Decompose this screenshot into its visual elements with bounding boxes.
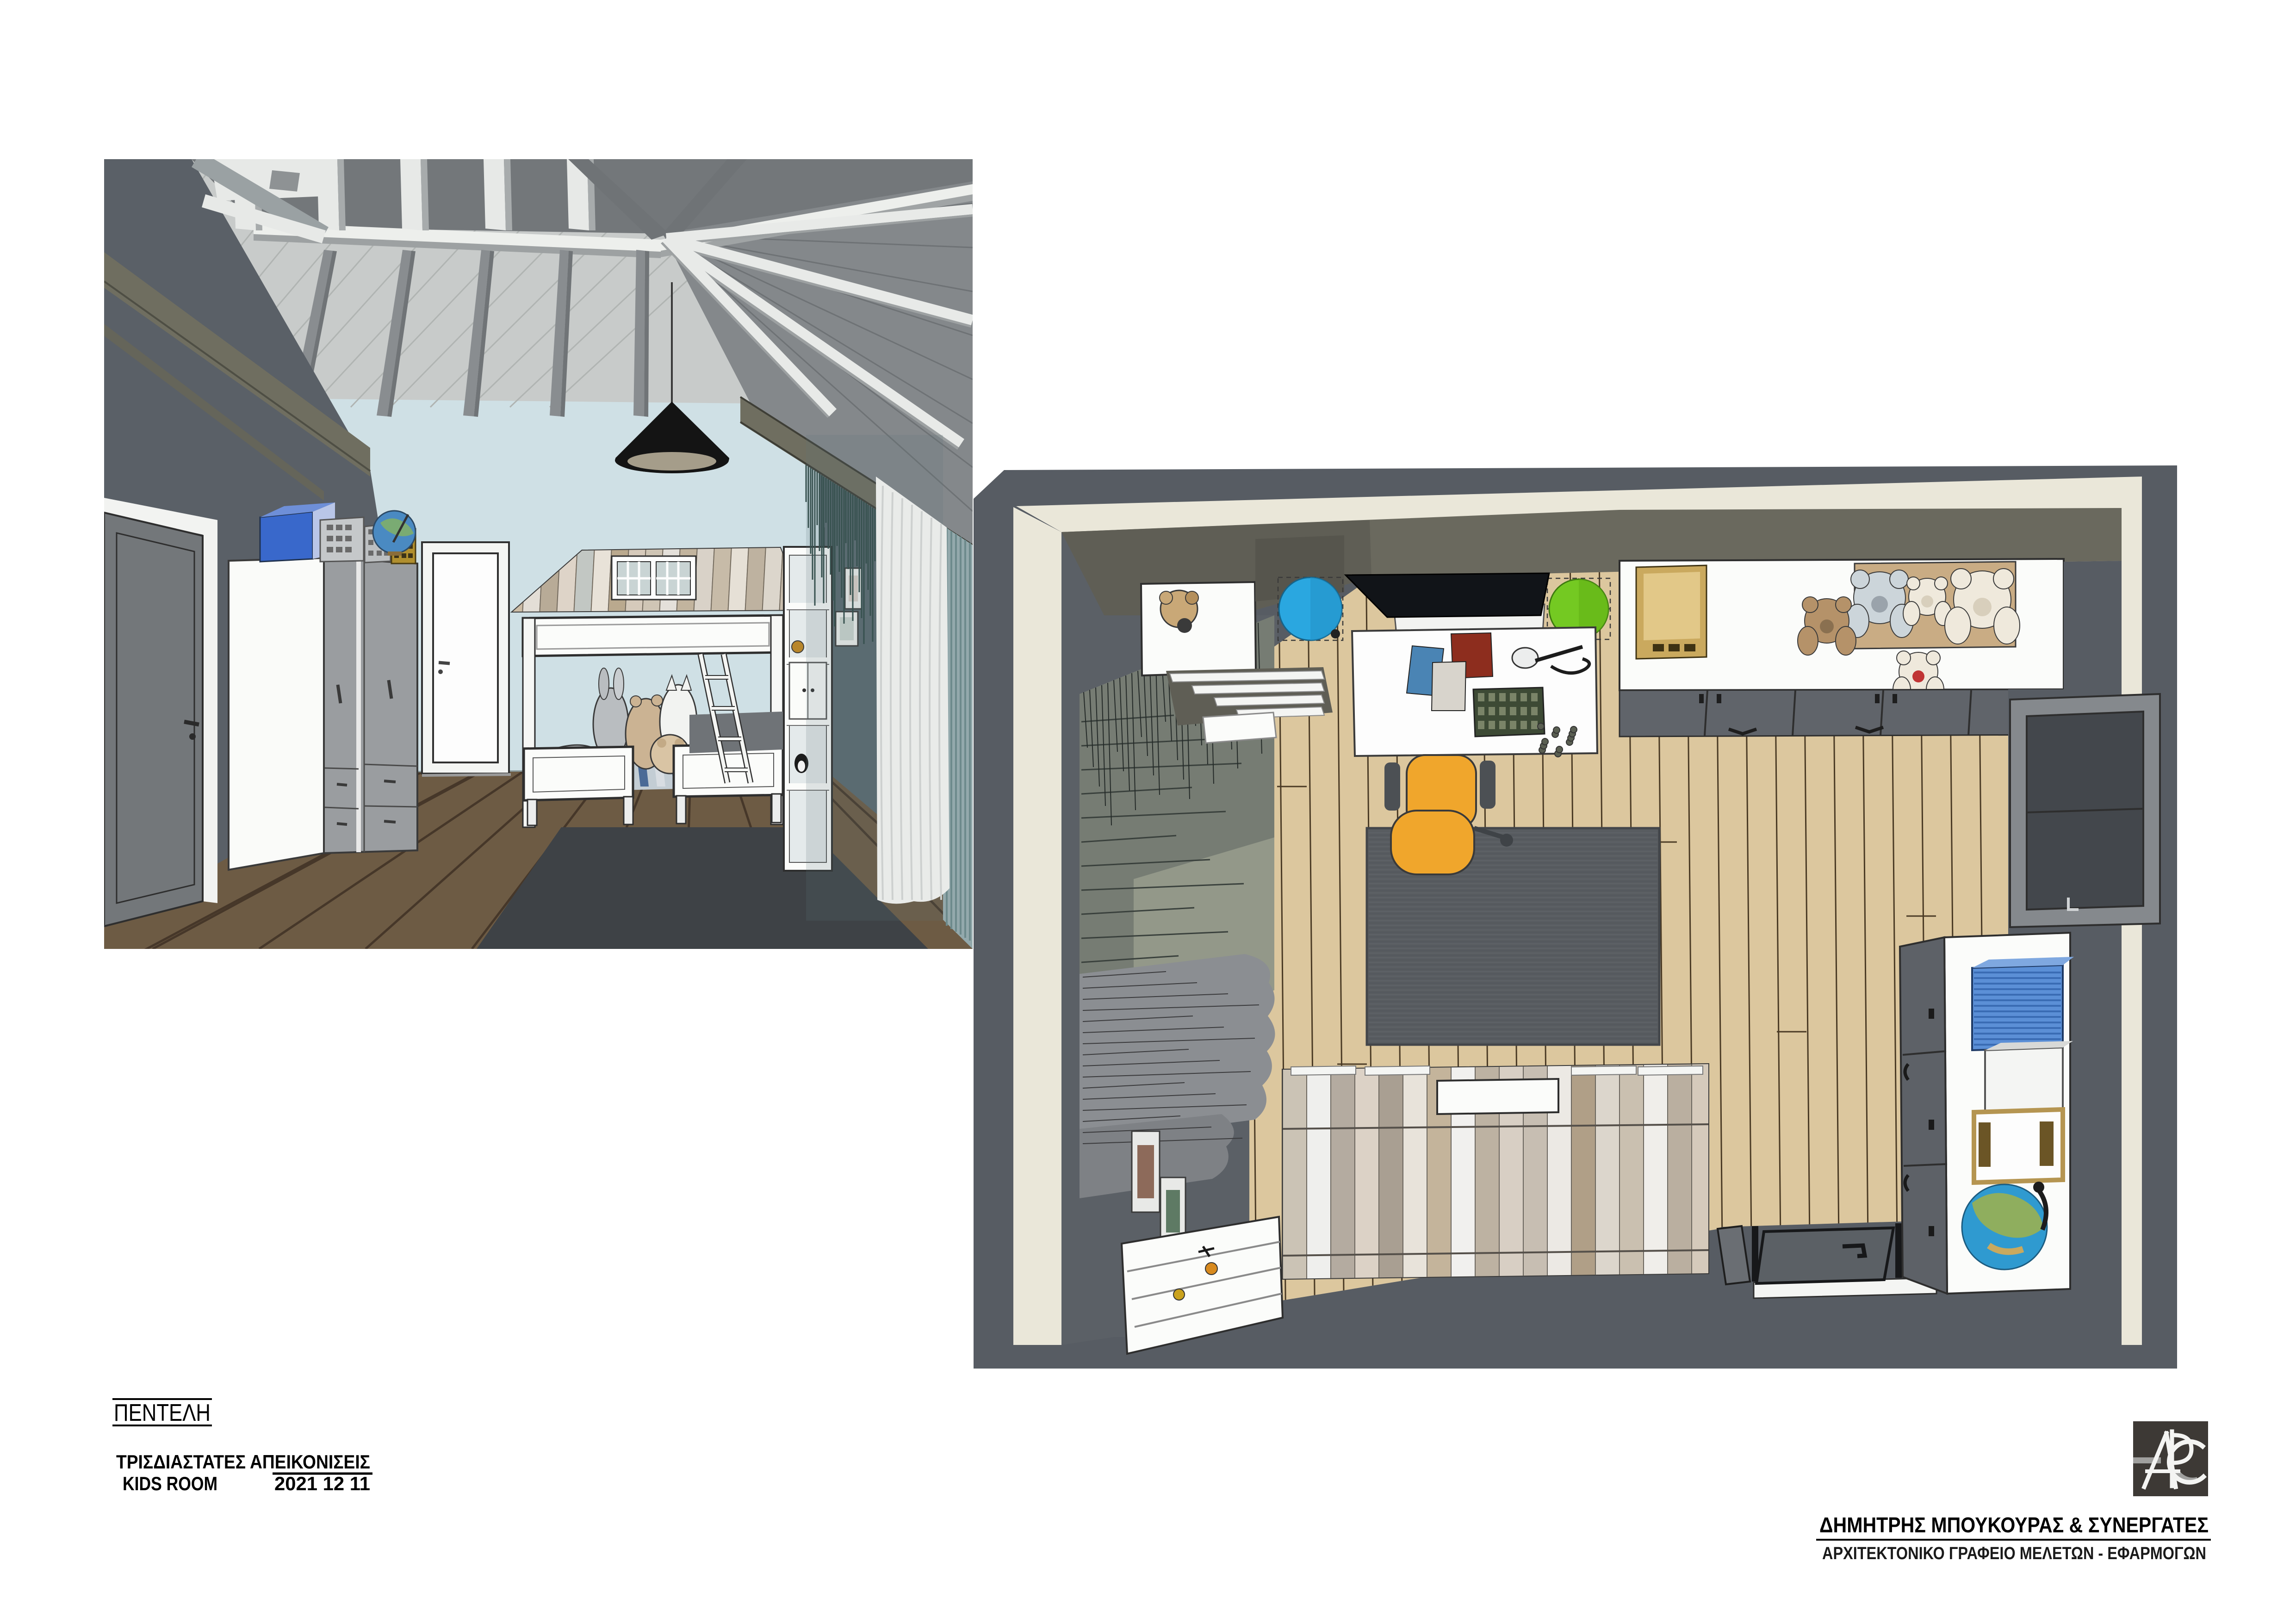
svg-text:ΠΕΝΤΕΛΗ: ΠΕΝΤΕΛΗ [114, 1400, 211, 1426]
svg-text:KIDS ROOM: KIDS ROOM [123, 1473, 217, 1494]
svg-text:ΑΡΧΙΤΕΚΤΟΝΙΚΟ ΓΡΑΦΕΙΟ ΜΕΛΕΤΩ: ΑΡΧΙΤΕΚΤΟΝΙΚΟ ΓΡΑΦΕΙΟ ΜΕΛΕΤΩΝ - ΕΦΑΡΜΟΓΩ… [1822, 1544, 2206, 1563]
svg-text:2021 12 11: 2021 12 11 [274, 1473, 370, 1494]
svg-text:ΔΗΜΗΤΡΗΣ ΜΠΟΥΚΟΥΡΑΣ & ΣΥΝΕΡΓΑΤ: ΔΗΜΗΤΡΗΣ ΜΠΟΥΚΟΥΡΑΣ & ΣΥΝΕΡΓΑΤΕΣ [1819, 1513, 2209, 1537]
svg-text:ΤΡΙΣΔΙΑΣΤΑΤΕΣ ΑΠΕΙΚΟΝΙΣΕΙΣ: ΤΡΙΣΔΙΑΣΤΑΤΕΣ ΑΠΕΙΚΟΝΙΣΕΙΣ [116, 1451, 370, 1473]
